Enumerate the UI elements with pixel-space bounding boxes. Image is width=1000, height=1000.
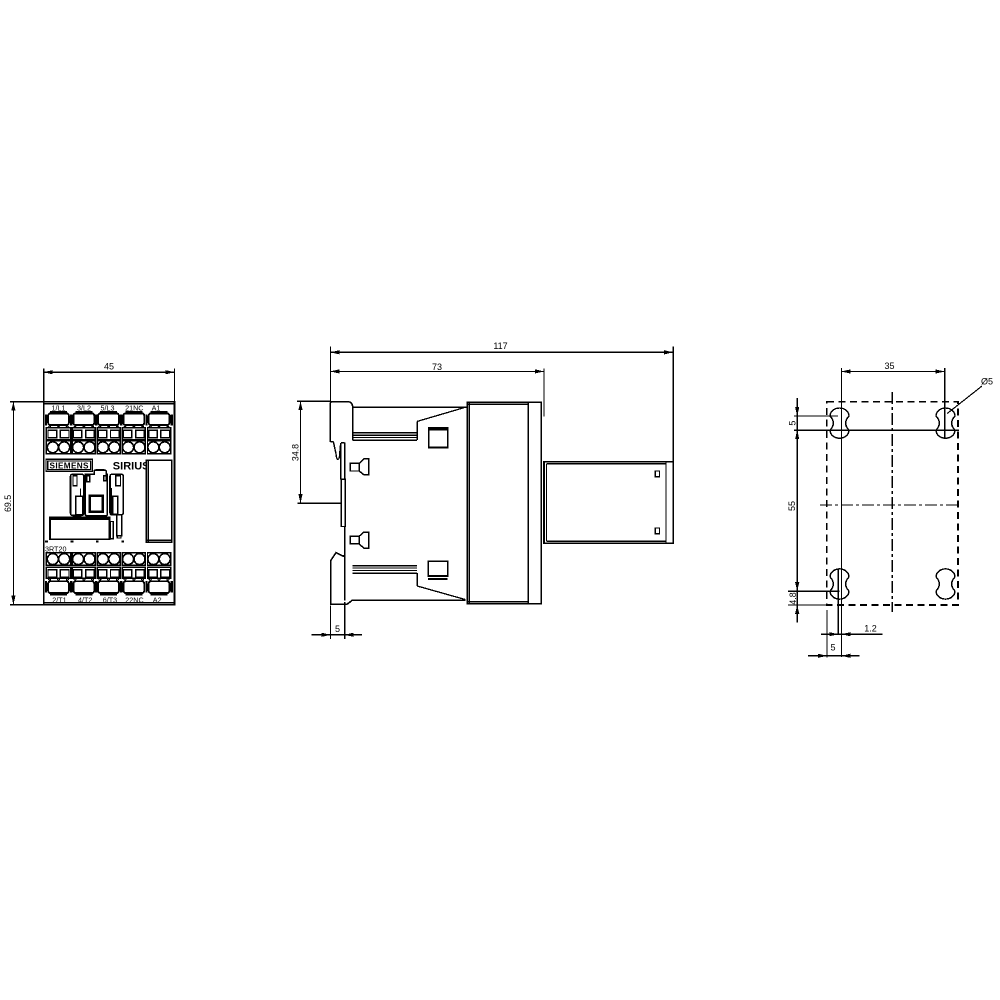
- svg-text:A2: A2: [153, 596, 162, 605]
- svg-text:73: 73: [432, 362, 442, 372]
- svg-text:6/T3: 6/T3: [103, 596, 117, 605]
- svg-text:SIRIUS: SIRIUS: [113, 461, 150, 473]
- svg-text:55: 55: [787, 501, 797, 511]
- svg-text:35: 35: [884, 361, 894, 371]
- svg-text:22NC: 22NC: [125, 596, 143, 605]
- svg-text:69.5: 69.5: [3, 495, 13, 512]
- svg-text:5: 5: [830, 643, 835, 653]
- svg-text:4/T2: 4/T2: [78, 596, 92, 605]
- svg-text:SIEMENS: SIEMENS: [50, 461, 89, 470]
- svg-text:45: 45: [104, 361, 114, 371]
- svg-text:4.8: 4.8: [788, 592, 798, 604]
- svg-text:5: 5: [335, 624, 340, 634]
- svg-text:2/T1: 2/T1: [52, 596, 66, 605]
- svg-text:117: 117: [493, 341, 507, 351]
- svg-text:Ø5: Ø5: [981, 376, 993, 386]
- svg-text:5: 5: [788, 421, 798, 426]
- svg-text:34.8: 34.8: [291, 444, 301, 461]
- svg-text:1.2: 1.2: [864, 623, 877, 633]
